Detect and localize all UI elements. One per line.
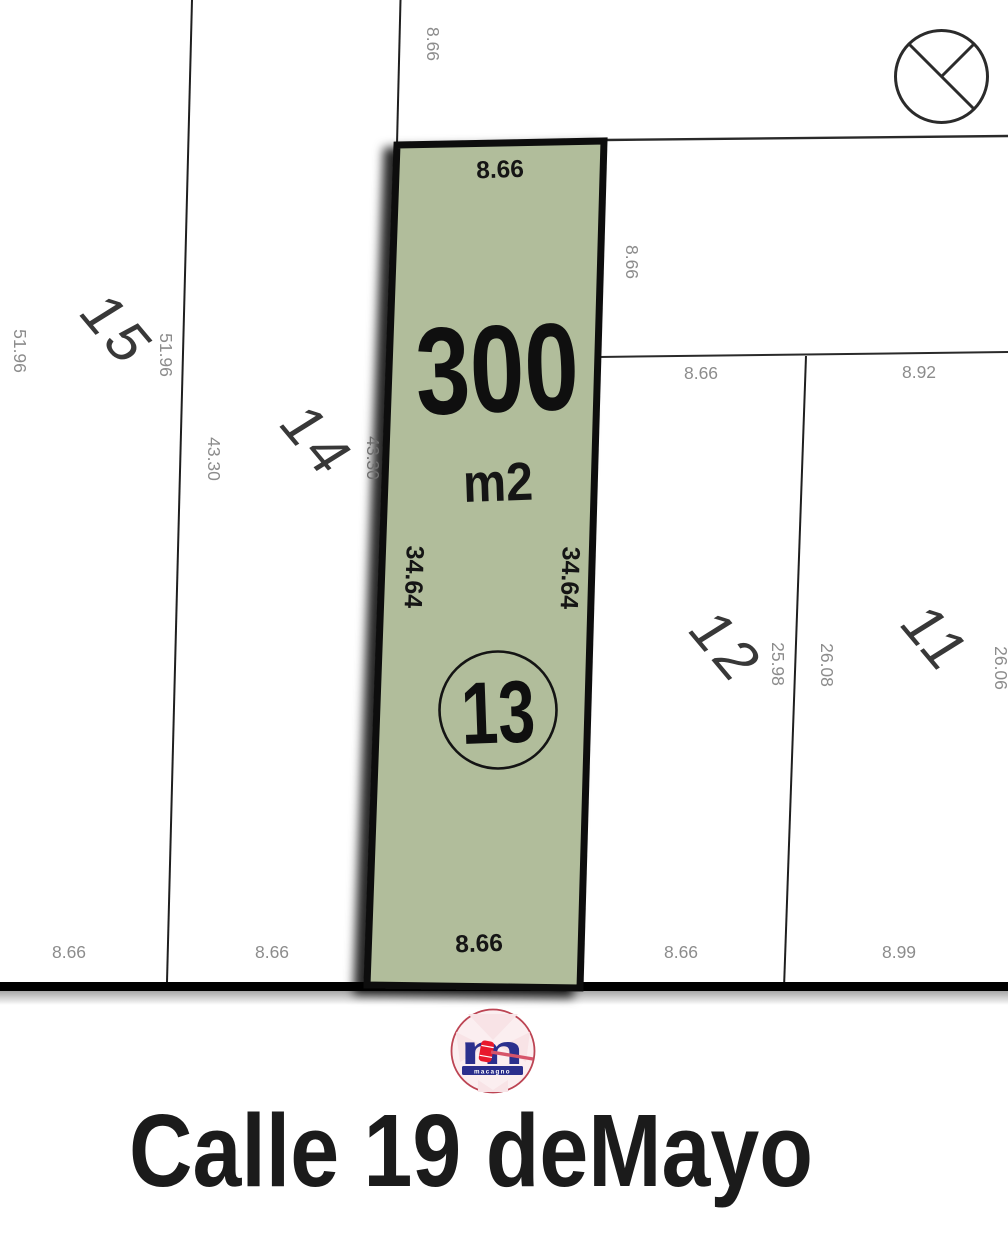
svg-text:26.08: 26.08	[817, 643, 837, 687]
svg-text:8.66: 8.66	[476, 156, 525, 185]
svg-text:26.06: 26.06	[991, 646, 1008, 690]
svg-text:8.66: 8.66	[52, 942, 86, 962]
svg-text:43.30: 43.30	[204, 437, 224, 481]
svg-text:8.66: 8.66	[423, 27, 443, 61]
svg-text:8.66: 8.66	[255, 942, 289, 962]
svg-text:m2: m2	[462, 452, 534, 514]
svg-text:8.92: 8.92	[902, 362, 936, 382]
svg-text:300: 300	[413, 298, 581, 442]
svg-text:34.64: 34.64	[399, 545, 429, 609]
svg-text:8.66: 8.66	[622, 245, 642, 279]
svg-text:Calle 19 deMayo: Calle 19 deMayo	[129, 1093, 813, 1208]
svg-text:8.66: 8.66	[664, 942, 698, 962]
svg-text:51.96: 51.96	[10, 329, 30, 373]
svg-text:8.66: 8.66	[684, 363, 718, 383]
svg-text:8.66: 8.66	[455, 930, 504, 959]
svg-text:51.96: 51.96	[156, 333, 176, 377]
svg-text:macagno: macagno	[474, 1069, 511, 1076]
svg-text:25.98: 25.98	[768, 642, 788, 686]
svg-text:13: 13	[459, 661, 536, 763]
svg-text:43.30: 43.30	[363, 436, 383, 480]
svg-text:34.64: 34.64	[555, 546, 585, 610]
svg-text:8.99: 8.99	[882, 942, 916, 962]
